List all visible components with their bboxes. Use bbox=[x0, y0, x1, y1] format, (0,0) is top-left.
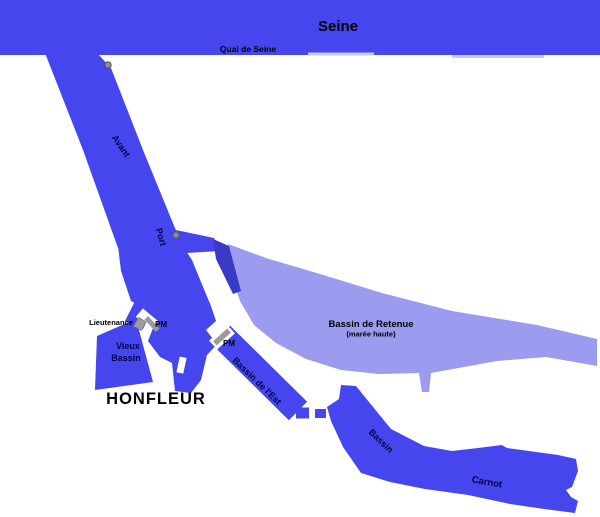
harbor-marker-dot bbox=[173, 232, 179, 238]
retenue-label: Bassin de Retenue bbox=[329, 319, 414, 330]
harbor-marker-dot bbox=[105, 62, 111, 68]
seine-river bbox=[0, 0, 600, 55]
lieutenance-label: Lieutenance bbox=[89, 318, 133, 327]
vieux-bassin-label-line2: Bassin bbox=[111, 353, 141, 363]
retenue-subtitle: (marée haute) bbox=[346, 330, 396, 339]
est-carnot-connector-dash bbox=[315, 409, 326, 418]
honfleur-port-map: Seine Quai de Seine Avant Port Lieutenan… bbox=[0, 0, 600, 517]
bassin-carnot bbox=[327, 385, 578, 513]
vieux-bassin-label-line1: Vieux bbox=[116, 341, 140, 351]
quay-edge-line bbox=[308, 53, 374, 56]
honfleur-port-map-page: Seine Quai de Seine Avant Port Lieutenan… bbox=[0, 0, 600, 517]
bassin-de-retenue bbox=[228, 244, 597, 392]
seine-label: Seine bbox=[318, 18, 358, 35]
quay-edge-line bbox=[452, 55, 544, 58]
pm-label-est: PM bbox=[223, 339, 235, 348]
quai-de-seine-label: Quai de Seine bbox=[220, 44, 276, 54]
avant-port-channel bbox=[45, 53, 184, 251]
pm-label-vieux: PM bbox=[155, 320, 167, 329]
honfleur-label: HONFLEUR bbox=[106, 390, 206, 408]
